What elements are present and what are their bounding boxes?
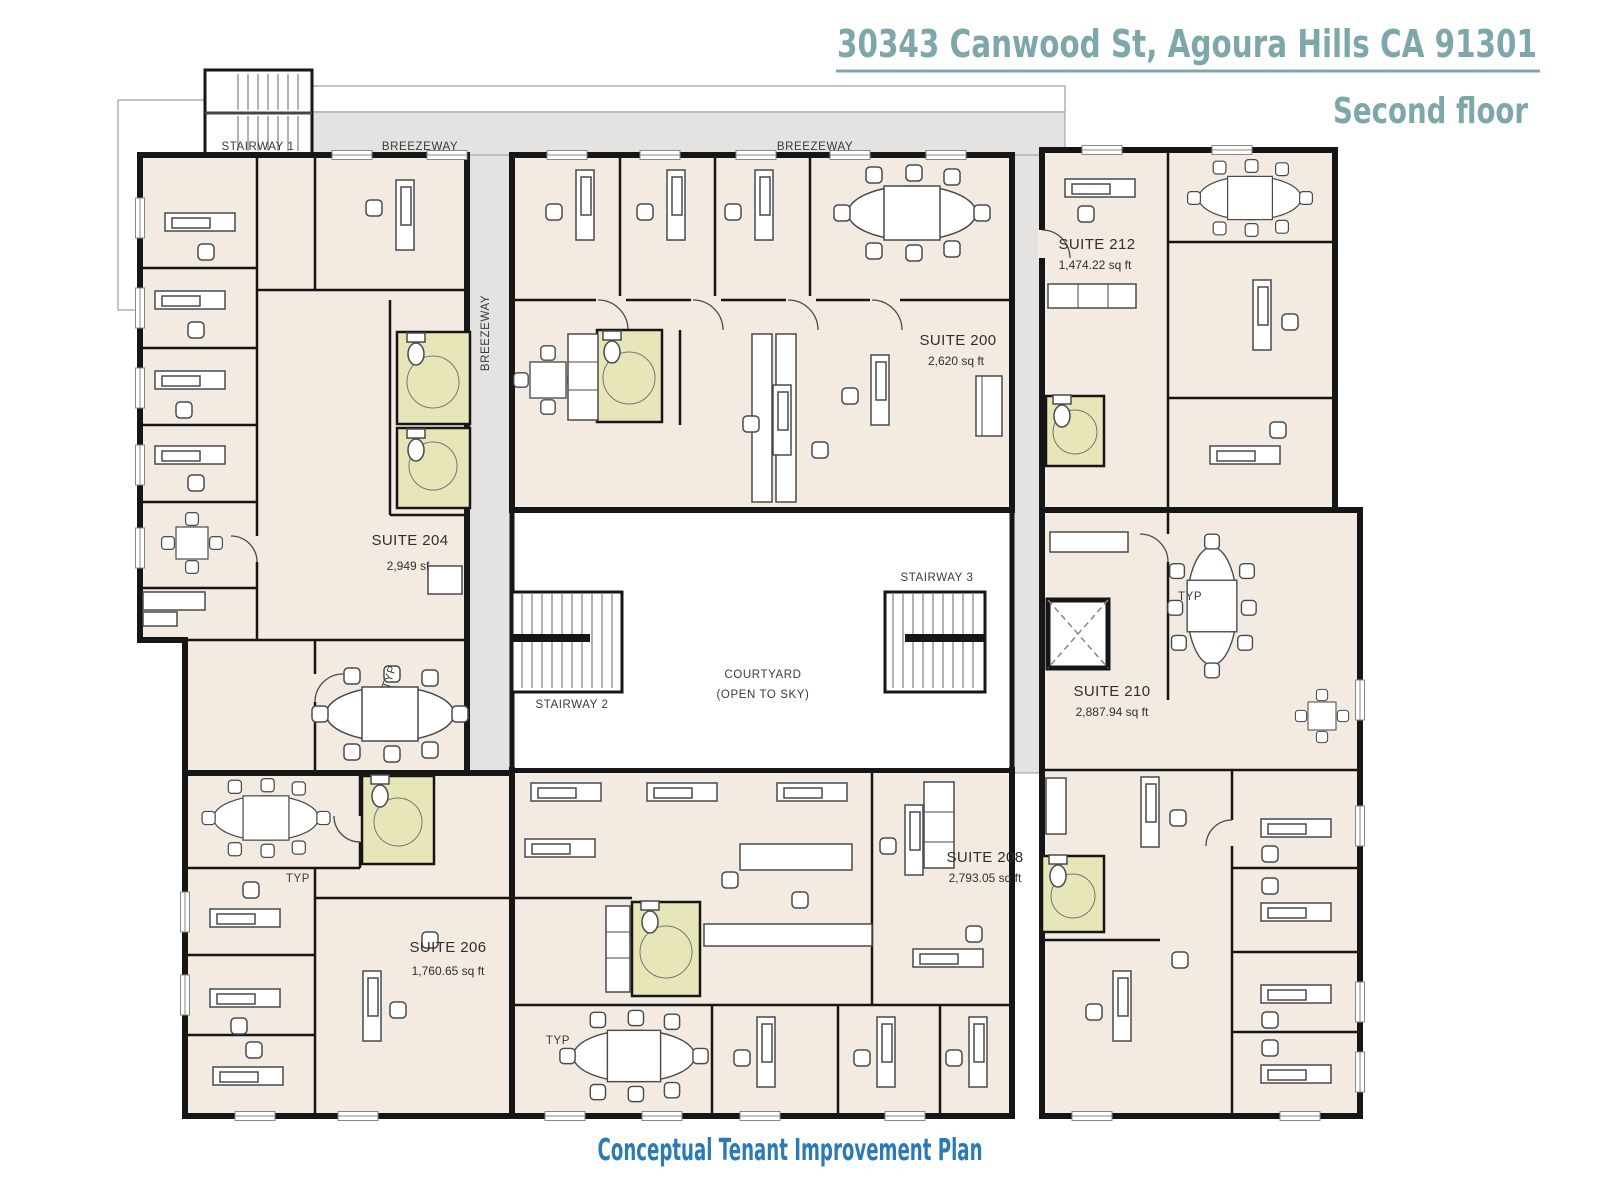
floor-subtitle: Second floor [1333,91,1528,132]
restroom [362,776,434,864]
typ-label-bottom-left: TYP [286,873,310,885]
stairway-2-label: STAIRWAY 2 [535,699,608,711]
suite-212-area: 1,474.22 sq ft [1059,258,1132,272]
floor-plan: 30343 Canwood St, Agoura Hills CA 91301 … [0,0,1600,1200]
stairway-1-label: STAIRWAY 1 [221,141,294,153]
suite-206-area: 1,760.65 sq ft [412,964,485,978]
suite-204-area: 2,949 sf [387,559,430,573]
elevator [1048,600,1108,668]
suite-208-area: 2,793.05 sq ft [949,871,1022,885]
stairway-2: STAIRWAY 2 [512,592,622,711]
restroom [397,428,470,508]
suite-204-name: SUITE 204 [372,532,449,549]
suite-200-area: 2,620 sq ft [928,354,985,368]
top-breezeway-band: BREEZEWAY BREEZEWAY [305,112,1065,155]
stairway-3-label: STAIRWAY 3 [900,572,973,584]
typ-label-right-wing: TYP [1178,591,1202,603]
restroom [1046,396,1104,466]
address-title: 30343 Canwood St, Agoura Hills CA 91301 [837,22,1537,66]
typ-label-bottom-center: TYP [546,1035,570,1047]
courtyard-label-1: COURTYARD [724,669,801,681]
breezeway-label-vertical: BREEZEWAY [480,295,492,371]
suite-208-name: SUITE 208 [947,849,1024,866]
footer: Conceptual Tenant Improvement Plan [598,1133,983,1168]
suite-212-name: SUITE 212 [1059,236,1136,253]
suite-210-name: SUITE 210 [1074,683,1151,700]
suite-206-name: SUITE 206 [410,939,487,956]
courtyard-label-2: (OPEN TO SKY) [716,689,809,701]
suite-200-name: SUITE 200 [920,332,997,349]
stairway-1: STAIRWAY 1 [205,70,312,155]
suite-210-area: 2,887.94 sq ft [1076,705,1149,719]
plan-caption: Conceptual Tenant Improvement Plan [598,1133,983,1168]
restroom [632,902,700,996]
